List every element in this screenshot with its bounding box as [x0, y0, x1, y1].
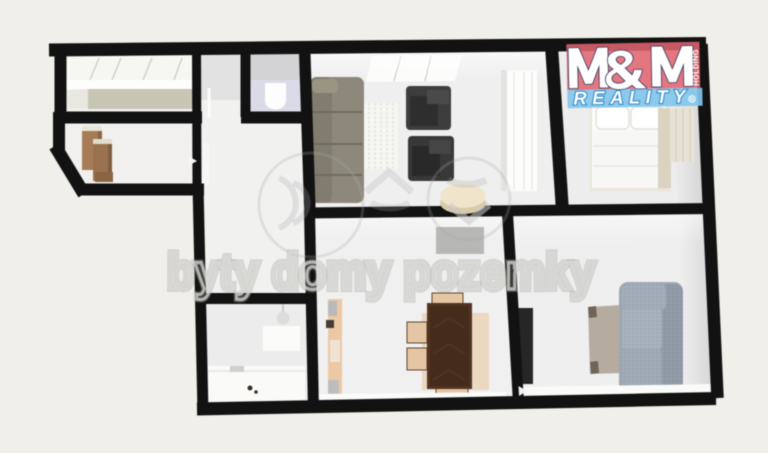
svg-text:HOLDING: HOLDING	[691, 49, 701, 86]
svg-text:R: R	[690, 97, 694, 103]
svg-text:byty domy pozemky: byty domy pozemky	[167, 244, 595, 300]
